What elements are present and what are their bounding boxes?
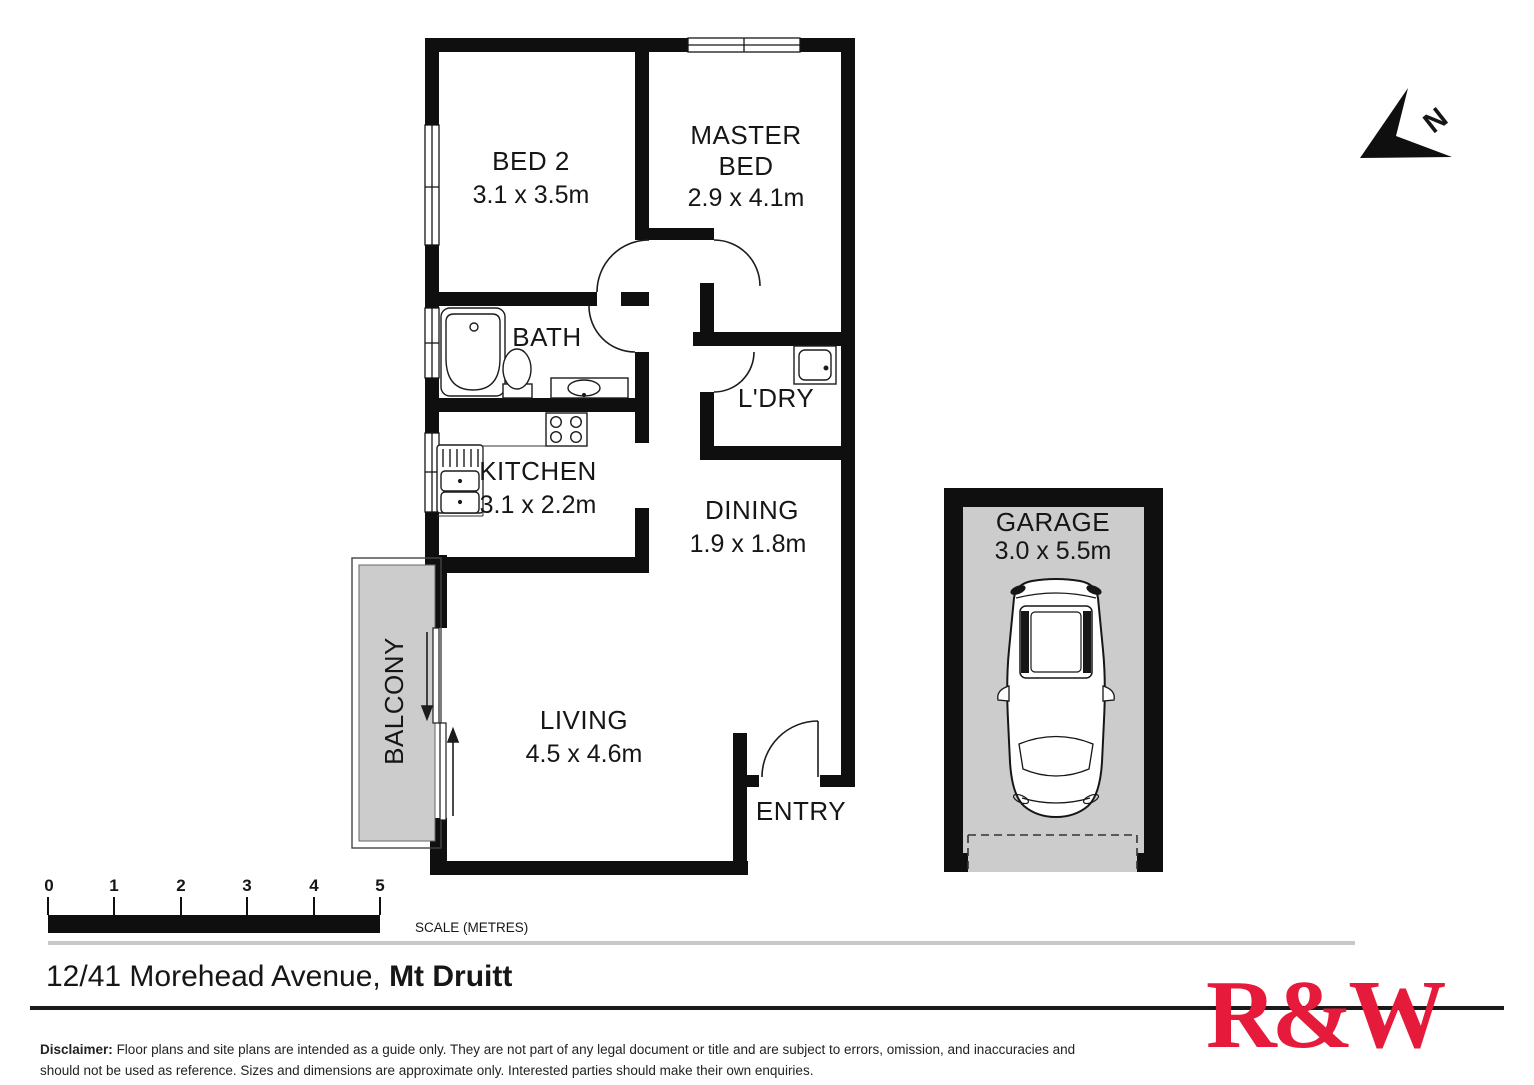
toilet: [503, 349, 532, 398]
tick-1: 1: [109, 876, 118, 895]
scale-caption: SCALE (METRES): [415, 920, 528, 935]
garage: GARAGE 3.0 x 5.5m: [944, 488, 1163, 872]
garage-dims: 3.0 x 5.5m: [995, 537, 1112, 565]
wall-left-1: [425, 38, 439, 125]
address-suburb: Mt Druitt: [389, 960, 512, 993]
north-arrow-n: N: [1418, 102, 1454, 140]
tick-3: 3: [242, 876, 251, 895]
disclaimer-label: Disclaimer:: [40, 1042, 113, 1057]
wall-bed2-bottom: [425, 292, 597, 306]
bathtub: [441, 308, 505, 396]
wall-kitchen-bottom: [425, 557, 649, 573]
wall-laundry-bottom: [700, 446, 855, 460]
wall-kitchen-right-lower: [635, 508, 649, 557]
wall-laundry-top: [693, 332, 855, 346]
bath-label: BATH: [512, 322, 581, 352]
vanity-basin: [551, 378, 628, 398]
agency-logo: R&W: [1206, 966, 1441, 1064]
window-bath: [425, 308, 439, 378]
tick-5: 5: [375, 876, 384, 895]
laundry-label: L'DRY: [738, 383, 814, 413]
scale-ticks: [48, 897, 380, 915]
car-top-view: [998, 579, 1115, 817]
kitchen-dims: 3.1 x 2.2m: [480, 491, 597, 519]
balcony-label: BALCONY: [379, 637, 409, 765]
stove-cooktop: [546, 413, 587, 446]
door-arc-entry: [762, 721, 818, 777]
master-dims: 2.9 x 4.1m: [688, 184, 805, 212]
tick-4: 4: [309, 876, 319, 895]
master-label-1: MASTER: [690, 120, 801, 150]
wall-corridor-top: [635, 228, 714, 240]
car-sunroof-bar-right: [1083, 611, 1091, 673]
master-label-2: BED: [719, 151, 774, 181]
window-bed2: [425, 125, 439, 245]
dining-label: DINING: [705, 495, 799, 525]
bed2-dims: 3.1 x 3.5m: [473, 181, 590, 209]
wall-kitchen-right-upper: [635, 412, 649, 443]
floorplan-svg: BALCONY BED 2 3.1 x 3.5m MASTER BED 2.9 …: [0, 0, 1534, 1085]
windows: [425, 38, 800, 512]
floorplan-page: BALCONY BED 2 3.1 x 3.5m MASTER BED 2.9 …: [0, 0, 1534, 1085]
north-arrow: N: [1360, 88, 1454, 158]
scale-bar-fill: [48, 915, 380, 933]
room-labels: BED 2 3.1 x 3.5m MASTER BED 2.9 x 4.1m B…: [473, 120, 846, 826]
disclaimer: Disclaimer: Floor plans and site plans a…: [40, 1040, 1115, 1082]
scale-bar: 0 1 2 3 4 5 SCALE (METRES): [44, 876, 528, 935]
wall-bed2-bottom-block: [621, 292, 649, 306]
living-dims: 4.5 x 4.6m: [526, 740, 643, 768]
laundry-tub: [794, 346, 836, 384]
door-arc-master: [714, 240, 760, 286]
wall-entry-divider: [733, 733, 747, 875]
divider-gray: [48, 941, 1355, 945]
wall-left-4: [425, 512, 439, 555]
property-address: 12/41 Morehead Avenue, Mt Druitt: [46, 960, 512, 994]
dining-dims: 1.9 x 1.8m: [690, 530, 807, 558]
bed2-label: BED 2: [492, 146, 570, 176]
address-street: 12/41 Morehead Avenue,: [46, 960, 381, 993]
door-arc-bath: [589, 306, 635, 352]
tick-2: 2: [176, 876, 185, 895]
scale-tick-labels: 0 1 2 3 4 5: [44, 876, 384, 895]
living-label: LIVING: [540, 705, 628, 735]
wall-bottom: [430, 861, 748, 875]
window-master: [688, 38, 800, 52]
wall-entry-nub-left: [747, 775, 759, 787]
car-rear-window: [1019, 737, 1093, 777]
wall-entry-nub-right: [820, 775, 855, 787]
car-sunroof-bar-left: [1021, 611, 1029, 673]
garage-label: GARAGE: [996, 507, 1110, 537]
door-arc-bed2: [597, 240, 649, 292]
tick-0: 0: [44, 876, 53, 895]
car-sunroof-glass: [1031, 612, 1081, 672]
garage-driveway: [968, 853, 1137, 872]
disclaimer-text: Floor plans and site plans are intended …: [40, 1042, 1075, 1078]
kitchen-label: KITCHEN: [479, 456, 597, 486]
kitchen-sink: [437, 445, 483, 513]
wall-bed-divider: [635, 38, 649, 228]
entry-label: ENTRY: [756, 796, 846, 826]
wall-right: [841, 38, 855, 775]
wall-bath-bottom: [425, 398, 649, 412]
